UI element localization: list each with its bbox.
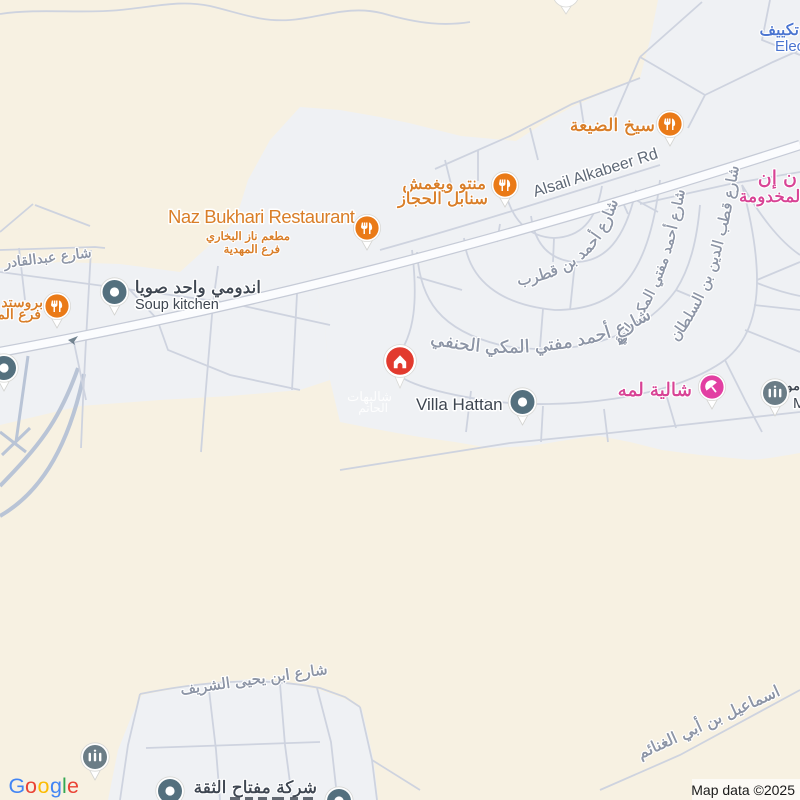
svg-text:o: o xyxy=(25,774,37,798)
svg-text:M: M xyxy=(793,395,800,412)
svg-text:Elec: Elec xyxy=(775,38,800,55)
svg-text:G: G xyxy=(9,774,26,798)
svg-text:g: g xyxy=(50,774,62,798)
svg-text:e: e xyxy=(67,774,79,798)
svg-text:Naz Bukhari Restaurant: Naz Bukhari Restaurant xyxy=(168,206,355,227)
svg-text:Soup kitchen: Soup kitchen xyxy=(135,297,219,313)
svg-text:Villa Hattan: Villa Hattan xyxy=(416,395,503,414)
svg-text:o: o xyxy=(38,774,50,798)
svg-text:Map data ©2025: Map data ©2025 xyxy=(691,782,795,798)
